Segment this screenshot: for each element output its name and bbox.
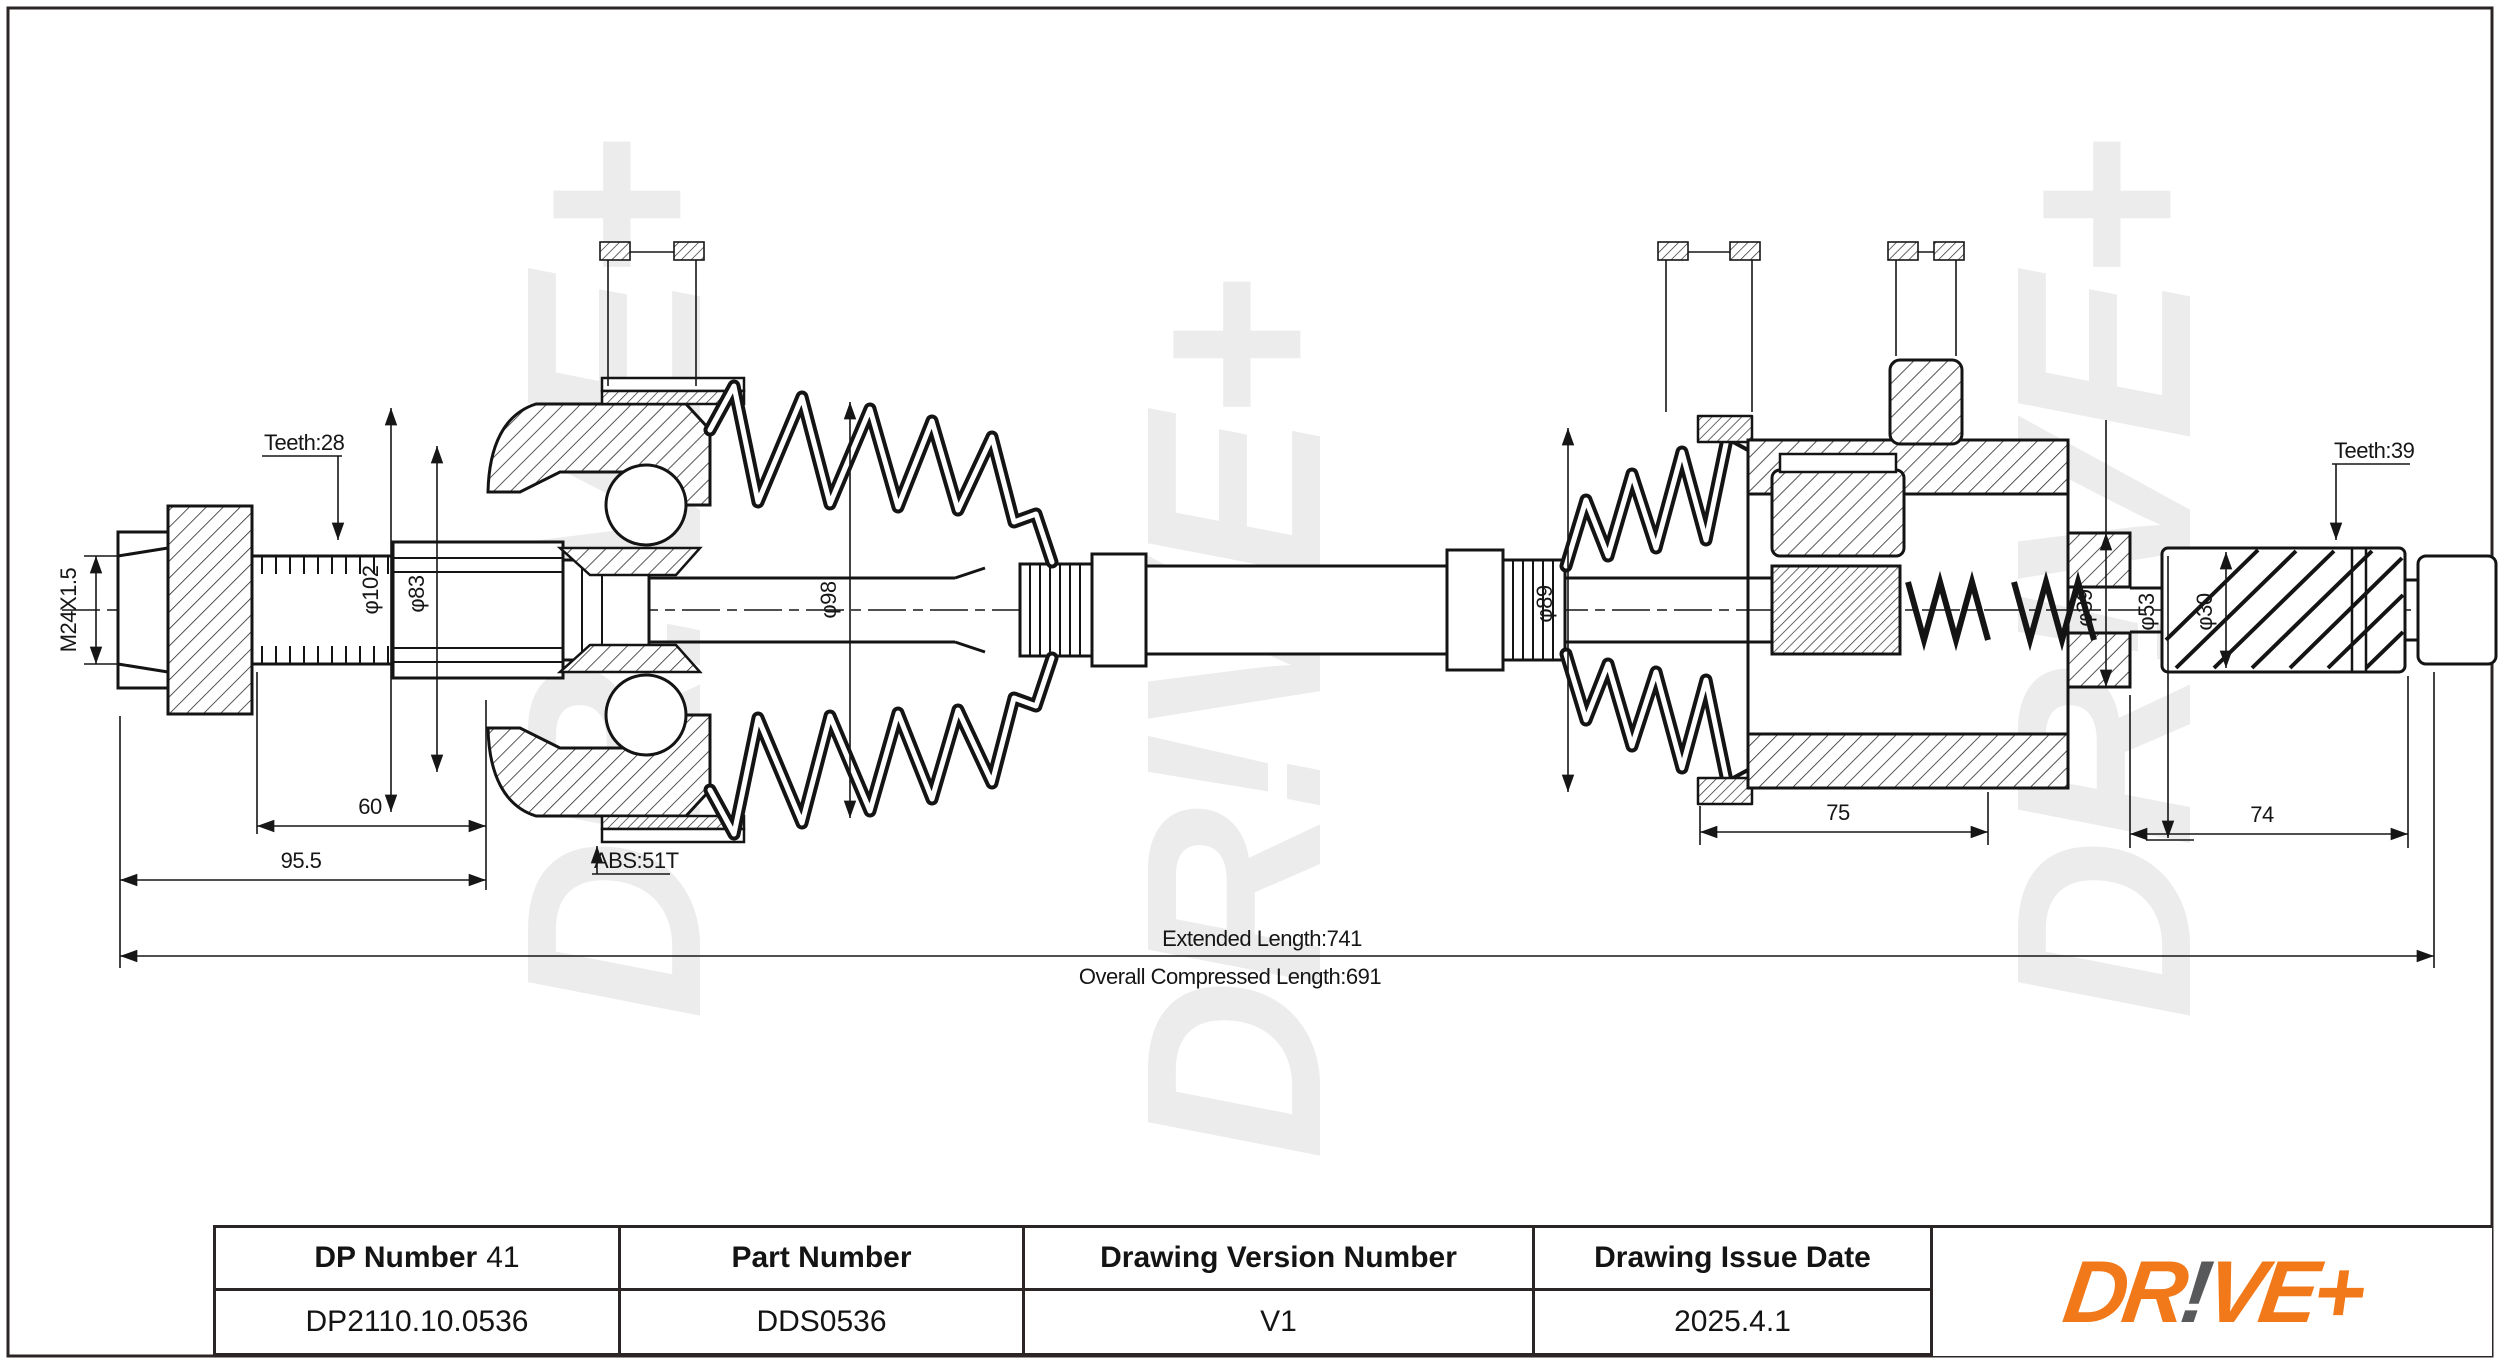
header-part-number: Part Number (621, 1228, 1025, 1291)
label-teeth-right: Teeth:39 (2334, 438, 2415, 463)
label-compressed-length: Overall Compressed Length:691 (1079, 964, 1381, 989)
hub-nut (118, 506, 252, 714)
dp-number-value: DP2110.10.0536 (306, 1305, 529, 1339)
abs-ring-top-outer (602, 378, 744, 391)
header-dp-number: DP Number 41 (216, 1228, 621, 1291)
label-len60: 60 (358, 794, 382, 819)
dp-number-label: DP Number (314, 1241, 477, 1275)
value-dp-number: DP2110.10.0536 (216, 1291, 621, 1354)
label-thread: M24X1.5 (56, 567, 81, 652)
drawing-issue-date-label: Drawing Issue Date (1594, 1241, 1871, 1275)
header-drawing-version: Drawing Version Number (1025, 1228, 1535, 1291)
technical-drawing: DR!VE+ DR!VE+ DR!VE+ (0, 0, 2500, 1363)
part-number-label: Part Number (731, 1241, 911, 1275)
label-dia30: φ30 (2192, 593, 2217, 631)
label-dia83: φ83 (404, 575, 429, 613)
drawing-issue-date-value: 2025.4.1 (1674, 1305, 1791, 1339)
label-len74: 74 (2250, 802, 2274, 827)
cv-ball-bottom (606, 675, 686, 755)
label-dia39: φ39 (2072, 589, 2097, 627)
logo-dr: DR (2058, 1242, 2189, 1341)
label-abs: ABS:51T (594, 848, 679, 873)
drawing-sheet: DR!VE+ DR!VE+ DR!VE+ (0, 0, 2500, 1363)
tripod-roller (1772, 470, 1904, 556)
label-len75: 75 (1826, 800, 1850, 825)
clamp-reference-inner-housing (1888, 242, 1964, 356)
output-spline-shaft (2130, 548, 2496, 672)
header-drawing-issue-date: Drawing Issue Date (1535, 1228, 1930, 1291)
logo-ve-plus: VE+ (2199, 1242, 2367, 1341)
driveplus-logo: DR!VE+ (2058, 1241, 2368, 1343)
value-drawing-issue-date: 2025.4.1 (1535, 1291, 1930, 1354)
title-block-table: DP Number 41 Part Number Drawing Version… (213, 1225, 1930, 1356)
label-dia102: φ102 (358, 565, 383, 614)
drawing-version-value: V1 (1260, 1305, 1297, 1339)
dp-number-inline-value: 41 (486, 1241, 519, 1275)
roller-top-view (1890, 360, 1962, 444)
boot-clamp-left-small (1092, 554, 1146, 666)
abs-ring-bottom-outer (602, 829, 744, 842)
boot-clamp-right-large-top (1698, 416, 1752, 442)
inner-spline-stub (1772, 566, 1900, 654)
label-len95: 95.5 (281, 848, 322, 873)
label-dia98: φ98 (816, 581, 841, 619)
label-dia53: φ53 (2134, 593, 2159, 631)
label-dia89: φ89 (1532, 585, 1557, 623)
part-number-value: DDS0536 (756, 1305, 886, 1339)
logo-box: DR!VE+ (1930, 1225, 2492, 1356)
inner-housing-end-cap-bottom (2068, 633, 2130, 687)
label-extended-length: Extended Length:741 (1162, 926, 1362, 951)
clamp-reference-right-boot (1658, 242, 1760, 412)
boot-clamp-right-large-bottom (1698, 778, 1752, 804)
cv-ball-top (606, 465, 686, 545)
value-part-number: DDS0536 (621, 1291, 1025, 1354)
watermark-center: DR!VE+ (1094, 281, 1373, 1160)
value-drawing-version: V1 (1025, 1291, 1535, 1354)
boot-clamp-right-small (1447, 550, 1503, 670)
inner-housing-bottom-wall (1748, 734, 2068, 788)
axle-shaft-middle (1146, 566, 1447, 654)
drawing-version-label: Drawing Version Number (1100, 1241, 1457, 1275)
label-teeth-left: Teeth:28 (264, 430, 345, 455)
shaft-tip (2418, 556, 2496, 664)
tripod-roller-cap (1780, 454, 1896, 472)
